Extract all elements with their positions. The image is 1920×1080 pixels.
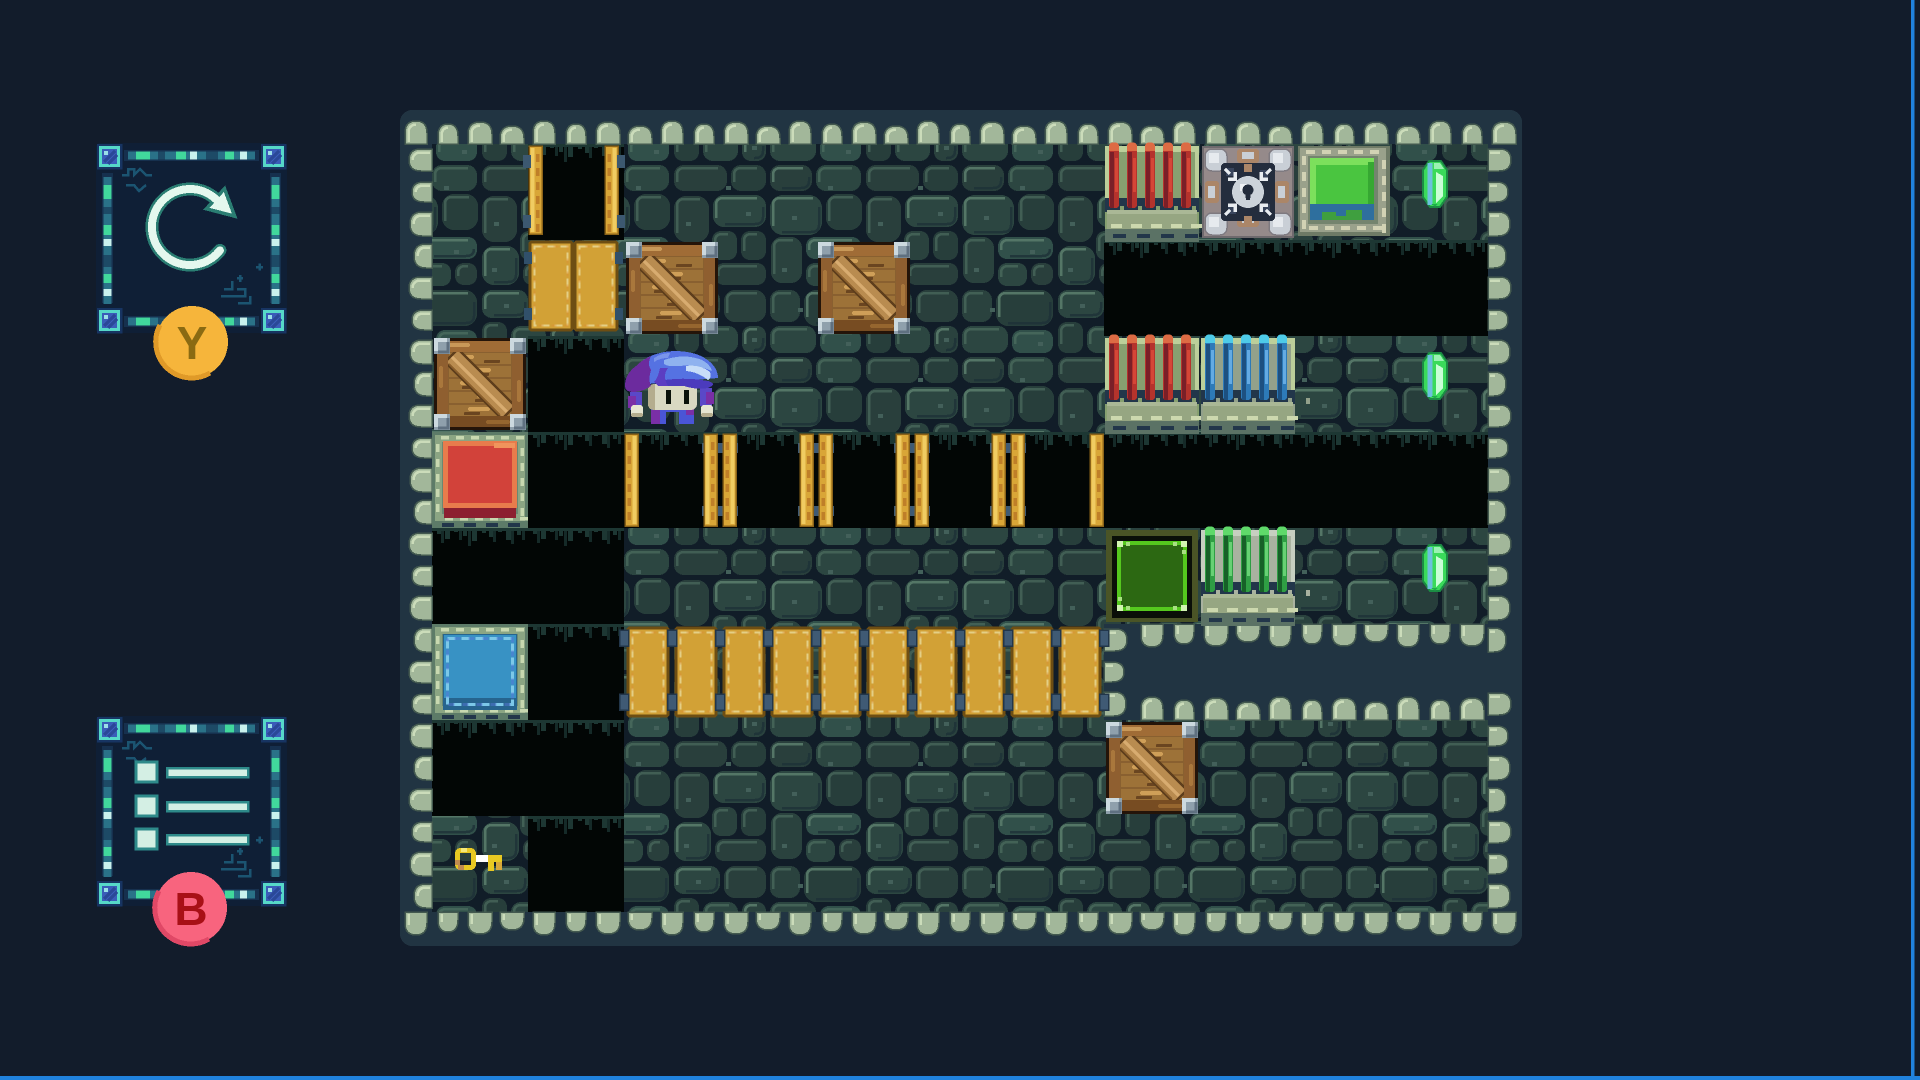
svg-text:Y: Y [177,317,208,369]
svg-text:B: B [174,883,207,935]
